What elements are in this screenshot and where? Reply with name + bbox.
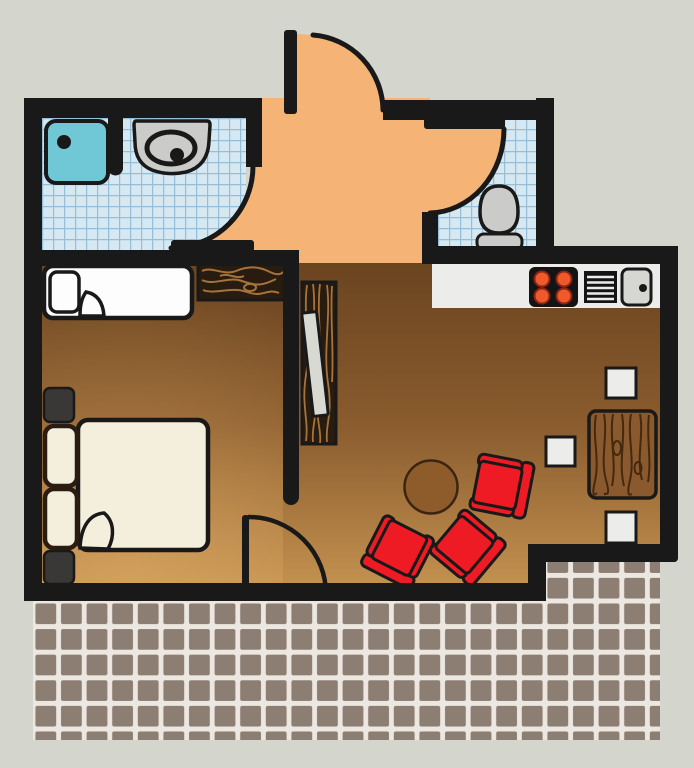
wardrobe [198, 264, 290, 300]
stool-3 [606, 512, 636, 543]
wall-bottom-left [24, 583, 546, 601]
wc-door-leaf [424, 110, 505, 129]
bathroom-door-leaf [171, 240, 254, 252]
wall-bathroom-right-stub [246, 98, 262, 167]
coffee-table [405, 461, 458, 514]
wall-bottom-right [535, 544, 678, 562]
wall-bedroom-living [283, 250, 299, 497]
dish-drainer [584, 271, 617, 303]
wall-cap-bedroom [283, 489, 299, 505]
single-bed [44, 266, 192, 318]
shower-drain-dot [57, 135, 71, 149]
nightstand-bottom [44, 551, 74, 584]
bathroom-sink [134, 121, 210, 174]
kitchen-sink [622, 269, 651, 305]
toilet-bowl [480, 186, 518, 233]
shelf [302, 282, 336, 444]
shower [46, 121, 108, 183]
entrance-door-leaf [284, 30, 297, 114]
wall-kitchen-top [422, 246, 678, 264]
drain-dot [639, 284, 647, 292]
wall-left [24, 98, 42, 601]
pillow [50, 272, 79, 312]
toilet [477, 186, 522, 250]
armchair-1 [469, 453, 535, 519]
wall-wc-left-stub [422, 212, 438, 264]
pillow-1 [45, 426, 77, 486]
wall-wc-right [536, 98, 554, 264]
wall-top-left [24, 98, 252, 118]
kitchen [432, 264, 660, 308]
sink-drain-dot [170, 148, 184, 162]
stool-1 [606, 368, 636, 398]
stool-2 [546, 437, 575, 466]
wall-bedroom-top [24, 250, 298, 266]
wall-bath-partition [108, 98, 123, 169]
floor-plan [0, 0, 694, 768]
stove [529, 267, 578, 307]
wall-cap-partition [108, 161, 123, 176]
dining-table [589, 411, 656, 498]
pillow-2 [45, 489, 77, 548]
nightstand-top [44, 388, 74, 422]
hall-floor [253, 98, 430, 263]
terrace-door-leaf [242, 515, 249, 595]
wall-right [660, 246, 678, 562]
